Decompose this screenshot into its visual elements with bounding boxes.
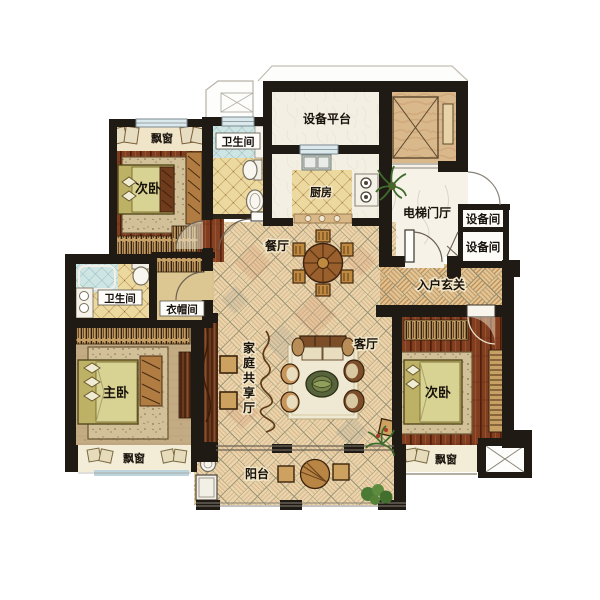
svg-text:享: 享 xyxy=(243,385,255,400)
svg-text:厨房: 厨房 xyxy=(310,185,332,199)
svg-text:厅: 厅 xyxy=(243,401,255,415)
svg-text:阳台: 阳台 xyxy=(245,466,269,481)
svg-text:飘窗: 飘窗 xyxy=(123,451,145,465)
svg-text:客厅: 客厅 xyxy=(353,336,378,351)
svg-text:卫生间: 卫生间 xyxy=(104,292,136,305)
svg-text:衣帽间: 衣帽间 xyxy=(166,303,198,316)
svg-text:飘窗: 飘窗 xyxy=(435,452,457,466)
svg-text:设备间: 设备间 xyxy=(466,240,501,254)
svg-text:主卧: 主卧 xyxy=(103,385,129,400)
svg-text:电梯门厅: 电梯门厅 xyxy=(403,205,451,220)
svg-text:共: 共 xyxy=(243,370,255,385)
svg-text:设备平台: 设备平台 xyxy=(303,111,351,126)
svg-text:庭: 庭 xyxy=(243,355,255,370)
svg-text:设备间: 设备间 xyxy=(466,212,501,226)
svg-text:次卧: 次卧 xyxy=(425,385,451,400)
svg-text:卫生间: 卫生间 xyxy=(222,135,255,149)
svg-text:入户玄关: 入户玄关 xyxy=(417,277,465,292)
svg-text:餐厅: 餐厅 xyxy=(265,238,289,253)
svg-text:家: 家 xyxy=(243,340,256,355)
svg-text:飘窗: 飘窗 xyxy=(151,131,173,145)
svg-text:次卧: 次卧 xyxy=(135,181,161,196)
